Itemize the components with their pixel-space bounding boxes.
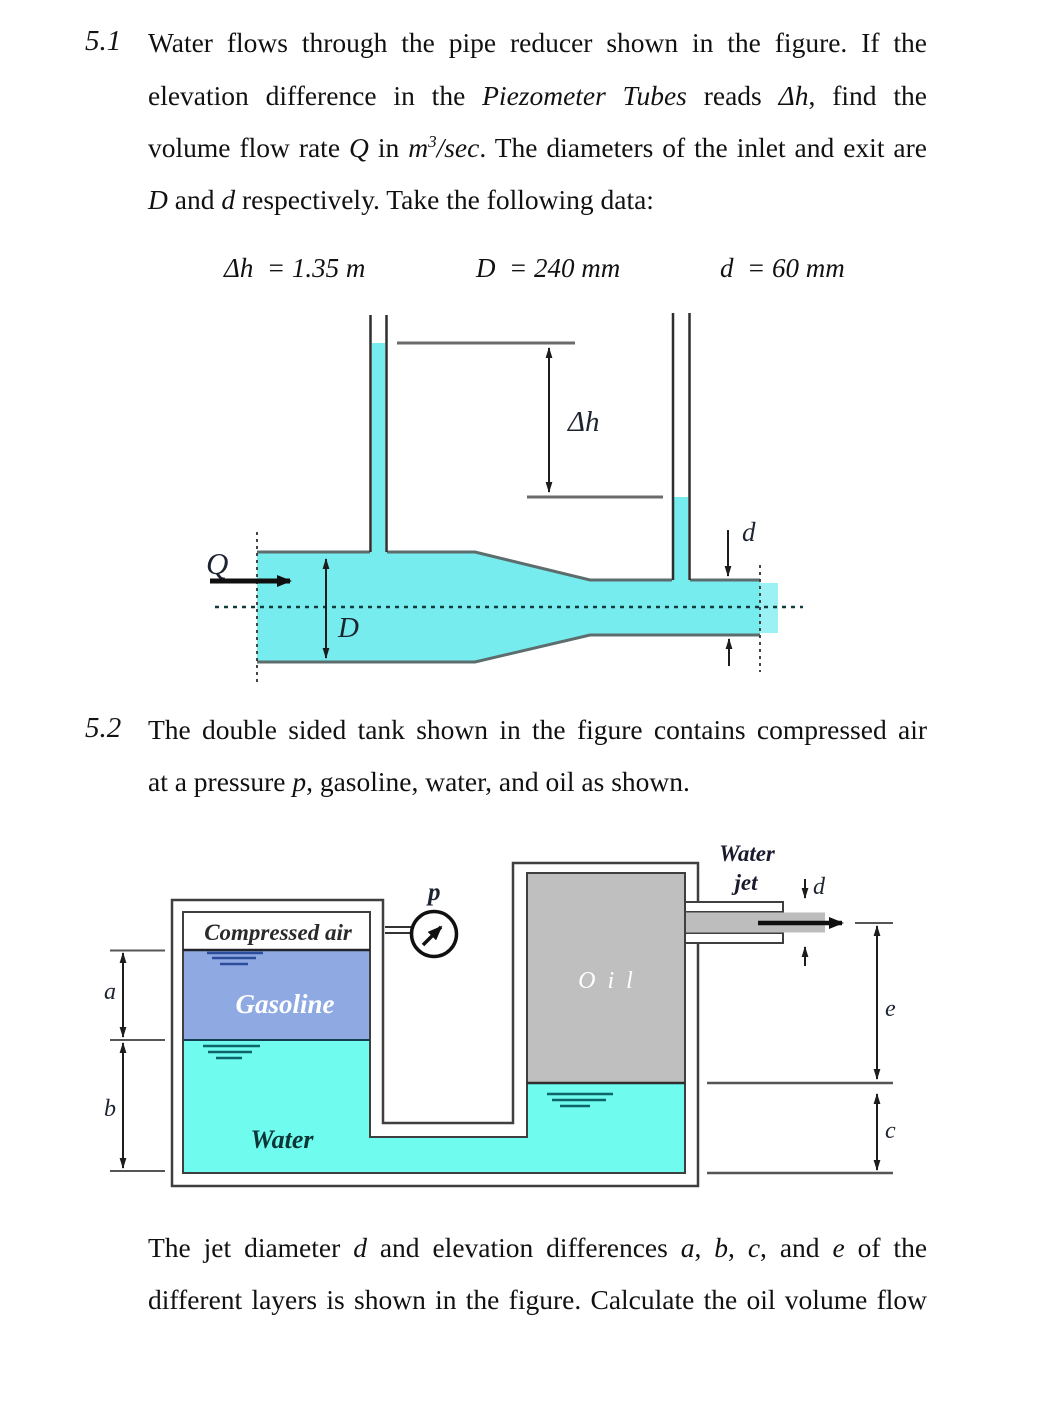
water-connecting-channel <box>370 1137 527 1173</box>
dimension-a-label: a <box>104 979 116 1005</box>
compressed-air-label: Compressed air <box>204 920 353 945</box>
gauge-connection-stub <box>385 927 411 933</box>
text-run: of the <box>845 1232 927 1263</box>
text-run-italic: b <box>714 1232 728 1263</box>
given-D: D = 240 mm <box>476 253 620 284</box>
text-run: in <box>369 132 408 163</box>
outlet-pipe <box>685 902 842 943</box>
inlet-diameter-D-label: D <box>337 612 359 644</box>
problem-5-1-line-4: D and d respectively. Take the following… <box>148 183 927 217</box>
text-run: The jet diameter <box>148 1232 353 1263</box>
figure-5-1-pipe-reducer: Δh Q D d <box>180 300 880 700</box>
text-run-italic: /sec <box>437 132 480 163</box>
dimension-c-label: c <box>885 1118 896 1144</box>
text-run: and <box>168 184 221 215</box>
text-run: , <box>728 1232 748 1263</box>
text-run: different layers is shown in the figure.… <box>148 1284 927 1315</box>
exit-diameter-d-label: d <box>742 517 756 547</box>
flow-rate-Q-label: Q <box>206 546 228 581</box>
text-run: elevation difference in the <box>148 80 482 111</box>
text-run: at a pressure <box>148 766 292 797</box>
text-run: , find the <box>809 80 927 111</box>
problem-5-1-number: 5.1 <box>85 26 121 58</box>
pressure-p-label: p <box>426 879 441 906</box>
left-dimension-ticks <box>110 951 165 1172</box>
given-d: d = 60 mm <box>720 253 845 284</box>
water-label: Water <box>250 1125 314 1154</box>
text-run: . The diameters of the inlet and exit ar… <box>479 132 927 163</box>
text-run: volume flow rate <box>148 132 349 163</box>
text-run: , and <box>760 1232 832 1263</box>
text-run-italic: d <box>353 1232 367 1263</box>
figure-5-2-double-tank: Compressed air Gasoline Water O i l p Wa… <box>90 845 920 1205</box>
text-run: respectively. Take the following data: <box>235 184 654 215</box>
given-delta-h: Δh = 1.35 m <box>224 253 365 284</box>
text-run-italic: c <box>748 1232 760 1263</box>
text-run-italic: Δh <box>779 80 809 111</box>
text-run: reads <box>687 80 779 111</box>
dimension-b-label: b <box>104 1096 116 1122</box>
gasoline-label: Gasoline <box>235 989 334 1019</box>
oil-label: O i l <box>578 968 636 994</box>
text-run: Water flows through the pipe reducer sho… <box>148 27 927 58</box>
superscript-3: 3 <box>428 132 437 151</box>
problem-5-2-number: 5.2 <box>85 713 121 745</box>
text-run-italic: d <box>221 184 235 215</box>
text-run-italic: Piezometer Tubes <box>482 80 687 111</box>
text-run: and elevation differences <box>367 1232 681 1263</box>
delta-h-label: Δh <box>567 406 600 438</box>
water-jet-label-line2: jet <box>731 870 759 895</box>
water-layer-right-tank <box>527 1083 685 1173</box>
jet-d-label: d <box>813 874 826 900</box>
left-piezometer-water-column <box>372 343 385 553</box>
closing-line-2: different layers is shown in the figure.… <box>148 1283 927 1352</box>
text-run-italic: a <box>681 1232 695 1263</box>
text-run: , <box>694 1232 714 1263</box>
document-page: 5.1 Water flows through the pipe reducer… <box>0 0 1058 1402</box>
right-piezometer-water-column <box>674 497 688 581</box>
text-run-italic: D <box>148 184 168 215</box>
text-run: The double sided tank shown in the figur… <box>148 714 927 745</box>
text-run-italic: m <box>408 132 428 163</box>
text-run-italic: Q <box>349 132 369 163</box>
text-run-italic: p <box>292 766 306 797</box>
water-jet-label-line1: Water <box>719 841 776 866</box>
pressure-gauge: p <box>385 879 457 957</box>
text-run-italic: e <box>832 1232 844 1263</box>
pipe-lower-wall <box>685 933 783 943</box>
problem-5-2-line-2: at a pressure p, gasoline, water, and oi… <box>148 765 927 799</box>
dimension-e-label: e <box>885 996 896 1022</box>
pipe-upper-wall <box>685 902 783 912</box>
text-run: , gasoline, water, and oil as shown. <box>306 766 690 797</box>
